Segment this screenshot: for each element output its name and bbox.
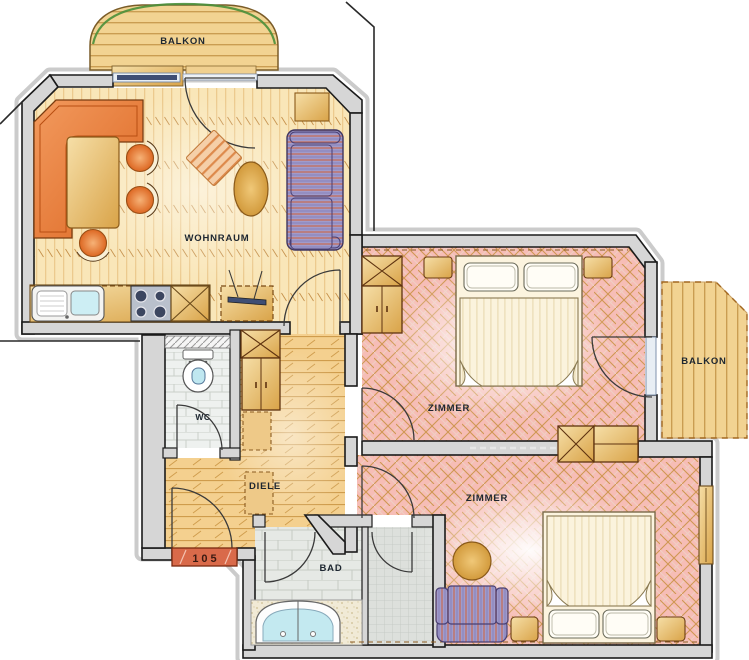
wall-zimmer1-right-upper xyxy=(645,262,657,337)
wall-step-right xyxy=(638,441,712,457)
pillow xyxy=(603,610,651,638)
tub-jet-right xyxy=(311,632,316,637)
wall-diele-bottom-right xyxy=(237,548,255,560)
balcony-right: BALKON xyxy=(662,282,747,438)
zimmer2-bed xyxy=(543,512,655,643)
wall-diele-bottom-left xyxy=(142,548,172,560)
pillow xyxy=(464,263,518,291)
blanket xyxy=(460,298,578,386)
wc-shaft-hatch xyxy=(165,336,230,348)
wall-zimmer2-right-lower xyxy=(700,562,712,652)
diele-cabinet-2 xyxy=(245,472,273,514)
tub-jet-left xyxy=(281,632,286,637)
diele-cabinet-1 xyxy=(243,412,271,450)
sofa xyxy=(287,130,343,250)
balcony-top-sill-right xyxy=(186,66,256,74)
diele-highlight xyxy=(220,350,360,520)
zimmer1-balcony-door-glass xyxy=(646,337,656,395)
wall-bottom xyxy=(243,645,712,658)
wohnraum-label: WOHNRAUM xyxy=(185,233,250,244)
wall-wc-bottom-b xyxy=(220,448,240,458)
wall-left-lower xyxy=(142,335,165,548)
floor-plan-page: BALKON BALKON xyxy=(0,0,749,660)
stove xyxy=(131,286,171,321)
kitchen-sink xyxy=(32,286,104,321)
chest-of-drawers xyxy=(558,426,638,462)
wall-wc-right xyxy=(230,330,240,460)
coffee-table xyxy=(234,162,268,216)
zimmer2-armchair xyxy=(436,586,508,642)
zimmer2-nightstand-right xyxy=(657,617,685,641)
kitchen xyxy=(30,285,210,322)
balcony-door-track xyxy=(183,74,257,80)
faucet xyxy=(65,315,69,319)
diele-wardrobe-x xyxy=(241,330,280,358)
dining-table xyxy=(67,137,119,228)
pillow xyxy=(524,263,578,291)
wall-zimmer2-right-upper xyxy=(700,457,712,488)
bad-label: BAD xyxy=(320,563,343,574)
wall-diele-right-a xyxy=(345,334,357,386)
wall-diele-right-b xyxy=(345,437,357,466)
zimmer1-nightstand-right xyxy=(584,257,612,278)
floor-plan-drawing: BALKON BALKON xyxy=(0,0,749,660)
blanket xyxy=(547,516,651,606)
unit-number-label: 105 xyxy=(192,553,219,565)
balcony-top-label: BALKON xyxy=(160,36,205,47)
wall-wc-bottom-a xyxy=(163,448,177,458)
zimmer2-label: ZIMMER xyxy=(466,493,508,504)
wall-zimmer1-left xyxy=(350,235,362,334)
living-window-bar xyxy=(117,75,177,80)
wc-label: WC xyxy=(195,412,210,422)
wall-top-left xyxy=(50,75,113,87)
zimmer1-bed xyxy=(456,256,582,386)
entry-doormat: 105 xyxy=(172,548,237,566)
zimmer2-nightstand-left xyxy=(511,617,538,641)
zimmer1-label: ZIMMER xyxy=(428,403,470,414)
wall-shower-divider xyxy=(362,527,368,645)
zimmer1-wardrobe xyxy=(362,256,402,333)
diele-wardrobe-doors xyxy=(242,358,280,410)
pillow xyxy=(549,610,599,638)
wall-bad-top-a xyxy=(253,515,265,527)
wall-living-right xyxy=(350,113,362,235)
zimmer1-nightstand-left xyxy=(424,257,452,278)
zimmer2-round-table xyxy=(453,542,491,580)
diele-label: DIELE xyxy=(249,481,281,492)
kitchen-cabinet-x xyxy=(171,286,209,321)
side-table xyxy=(295,93,329,121)
toilet-bowl-inner xyxy=(192,368,205,384)
balcony-right-label: BALKON xyxy=(681,356,726,367)
toilet-tank xyxy=(183,350,213,359)
wall-zimmer1-right-lower xyxy=(645,395,657,447)
